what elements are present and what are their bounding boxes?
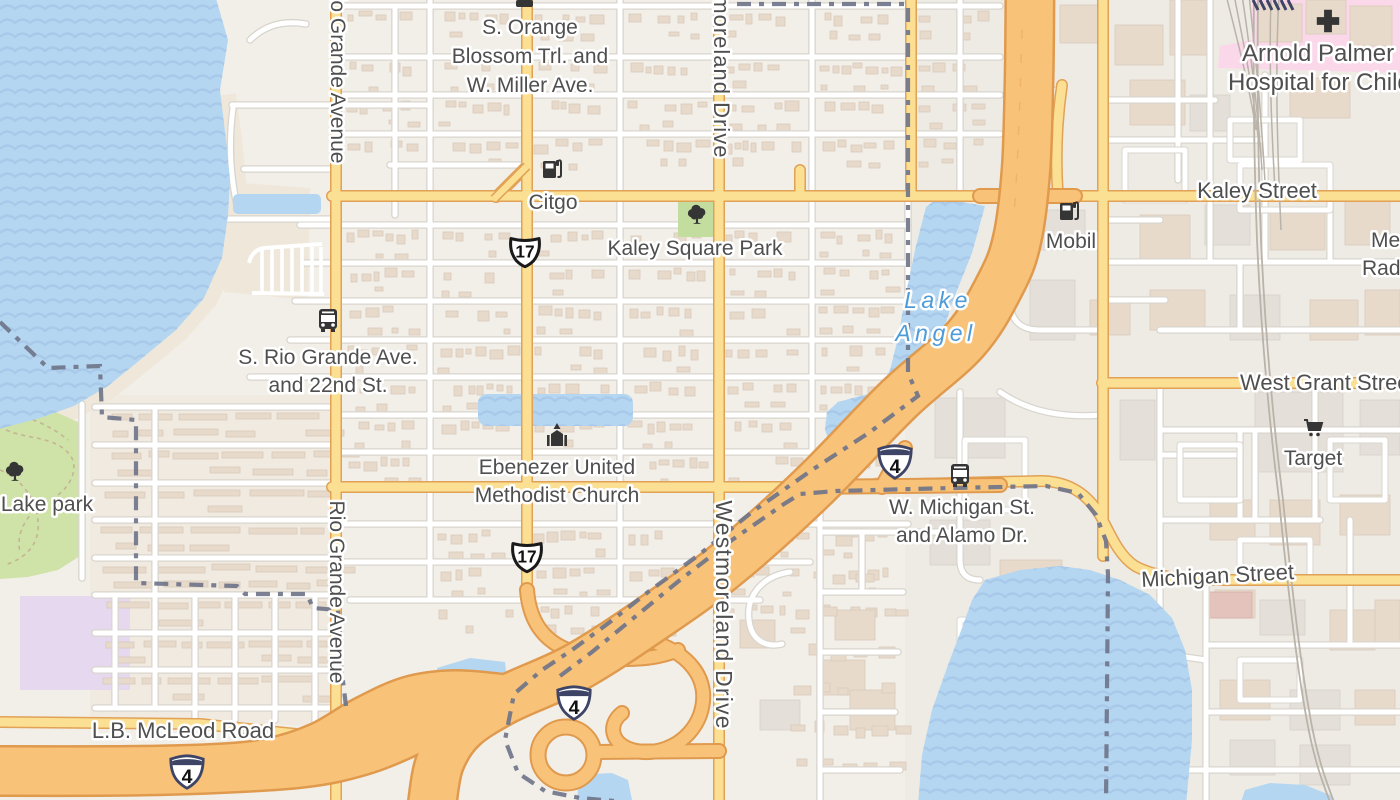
svg-text:Memorial: Memorial — [1371, 229, 1400, 252]
svg-text:Ebenezer United: Ebenezer United — [479, 456, 635, 479]
svg-text:Mobil: Mobil — [1046, 230, 1096, 253]
svg-text:4: 4 — [569, 697, 580, 719]
svg-text:Arnold Palmer: Arnold Palmer — [1242, 40, 1394, 67]
svg-text:Radiology: Radiology — [1362, 257, 1400, 280]
svg-text:West Grant Street: West Grant Street — [1240, 370, 1400, 395]
svg-text:Citgo: Citgo — [528, 191, 577, 214]
svg-text:17: 17 — [517, 546, 536, 566]
svg-text:Lake: Lake — [904, 287, 972, 313]
svg-text:S. Orange: S. Orange — [482, 16, 578, 39]
svg-text:4: 4 — [890, 456, 901, 478]
svg-text:and 22nd St.: and 22nd St. — [268, 374, 387, 397]
svg-text:Rio Grande Avenue: Rio Grande Avenue — [326, 0, 349, 163]
svg-text:Rio Grande Avenue: Rio Grande Avenue — [325, 501, 348, 684]
svg-text:Hospital for Children: Hospital for Children — [1228, 69, 1400, 96]
svg-text:Methodist Church: Methodist Church — [475, 484, 640, 507]
svg-text:4: 4 — [182, 766, 193, 788]
svg-text:L.B. McLeod Road: L.B. McLeod Road — [92, 718, 274, 743]
svg-text:Kaley Street: Kaley Street — [1197, 178, 1317, 203]
svg-text:S. Rio Grande Ave.: S. Rio Grande Ave. — [238, 346, 417, 369]
svg-text:and Alamo Dr.: and Alamo Dr. — [896, 524, 1028, 547]
svg-text:17: 17 — [515, 241, 534, 261]
svg-text:Westmoreland Drive: Westmoreland Drive — [709, 0, 734, 158]
svg-text:Lake park: Lake park — [1, 493, 94, 516]
svg-text:Angel: Angel — [893, 320, 976, 346]
svg-text:Westmoreland Drive: Westmoreland Drive — [711, 500, 737, 730]
svg-text:Target: Target — [1284, 447, 1343, 470]
svg-text:W. Michigan St.: W. Michigan St. — [889, 496, 1035, 519]
svg-text:W. Miller Ave.: W. Miller Ave. — [467, 74, 594, 97]
svg-text:Blossom Trl. and: Blossom Trl. and — [452, 45, 608, 68]
svg-text:Kaley Square Park: Kaley Square Park — [607, 237, 783, 260]
